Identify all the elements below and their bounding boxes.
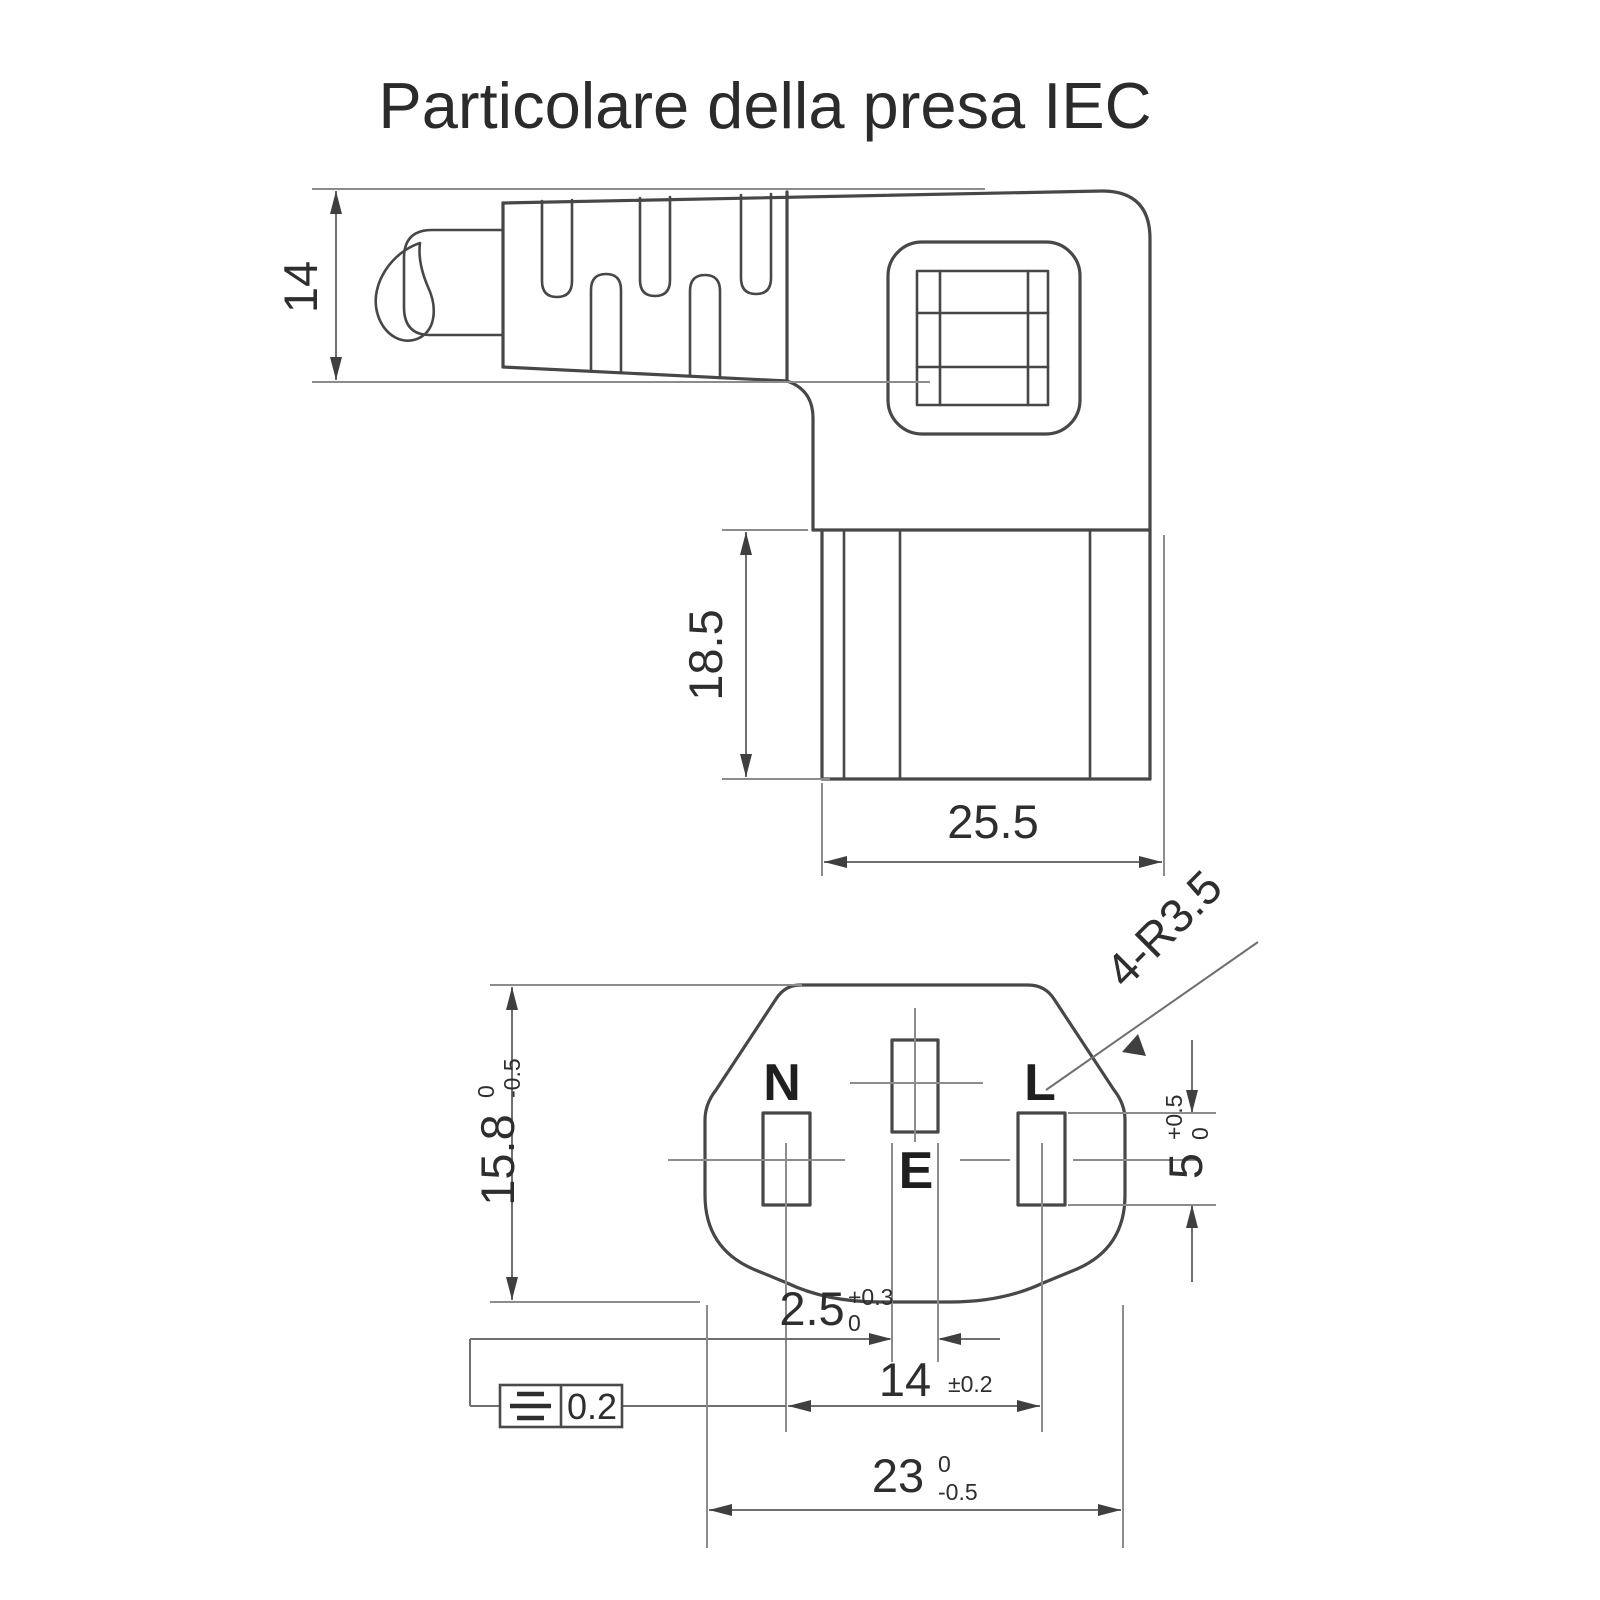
corner-radius-note: 4-R3.5 xyxy=(1095,860,1232,997)
plug-body xyxy=(822,530,1150,779)
dim-face-width: 23 0 -0.5 xyxy=(707,1305,1123,1548)
dim-cable-height: 14 xyxy=(274,189,985,382)
pin-label-live: L xyxy=(1024,1054,1056,1112)
corner-radius-callout: 4-R3.5 xyxy=(1046,860,1258,1090)
symmetry-tolerance-main: 0.2 xyxy=(567,1386,617,1427)
dim-earth-hole-width-tol-top: +0.3 xyxy=(848,1284,893,1310)
dim-earth-hole-width-tol-bottom: 0 xyxy=(848,1310,861,1336)
dim-plug-depth-value: 18.5 xyxy=(679,609,732,700)
dim-face-height-tol-top: 0 xyxy=(473,1085,499,1098)
boot-slot-bottom-2 xyxy=(690,275,720,378)
dim-face-width-value: 23 xyxy=(872,1449,924,1502)
dim-face-height-value: 15.8 xyxy=(471,1114,524,1205)
boot-slot-top-3 xyxy=(741,194,771,294)
dim-live-hole-height-tol-bottom: 0 xyxy=(1187,1127,1213,1140)
dim-face-height-tol-bottom: -0.5 xyxy=(499,1058,525,1098)
cable xyxy=(376,230,503,341)
side-view: 14 18.5 25.5 xyxy=(274,189,1164,876)
boot-slot-top-2 xyxy=(640,197,670,296)
strain-relief-boot xyxy=(503,192,813,530)
drawing-title: Particolare della presa IEC xyxy=(378,69,1151,142)
dim-earth-hole-width: 2.5 +0.3 0 xyxy=(470,1282,1000,1345)
pin-label-neutral: N xyxy=(763,1054,801,1112)
symmetry-tolerance-frame: 0.2 xyxy=(470,1339,786,1427)
connector-head xyxy=(503,191,1150,779)
dim-face-width-tol-bottom: -0.5 xyxy=(938,1479,978,1505)
dim-live-hole-height-value: 5 xyxy=(1159,1153,1212,1179)
dim-cable-height-value: 14 xyxy=(274,261,327,313)
pin-label-earth: E xyxy=(899,1142,934,1200)
dim-pin-spacing-value: 14 xyxy=(879,1353,931,1406)
boot-slot-bottom-1 xyxy=(591,274,621,373)
dim-pin-spacing: 14 ±0.2 xyxy=(788,1353,1040,1412)
dim-pin-spacing-tol: ±0.2 xyxy=(948,1371,993,1397)
boot-slot-top-1 xyxy=(542,200,572,297)
dim-plug-depth: 18.5 xyxy=(679,530,830,779)
iec-socket-drawing: Particolare della presa IEC xyxy=(0,0,1600,1600)
dim-earth-hole-width-value: 2.5 xyxy=(779,1282,844,1335)
latch-detail xyxy=(888,242,1080,434)
dim-plug-width-value: 25.5 xyxy=(947,795,1038,848)
dim-plug-width: 25.5 xyxy=(822,535,1164,876)
front-view: N E L 15.8 0 -0.5 5 +0.5 xyxy=(470,860,1258,1548)
dim-live-hole-height-tol-top: +0.5 xyxy=(1161,1095,1187,1140)
dim-face-width-tol-top: 0 xyxy=(938,1451,951,1477)
technical-drawing-page: Particolare della presa IEC xyxy=(0,0,1600,1600)
